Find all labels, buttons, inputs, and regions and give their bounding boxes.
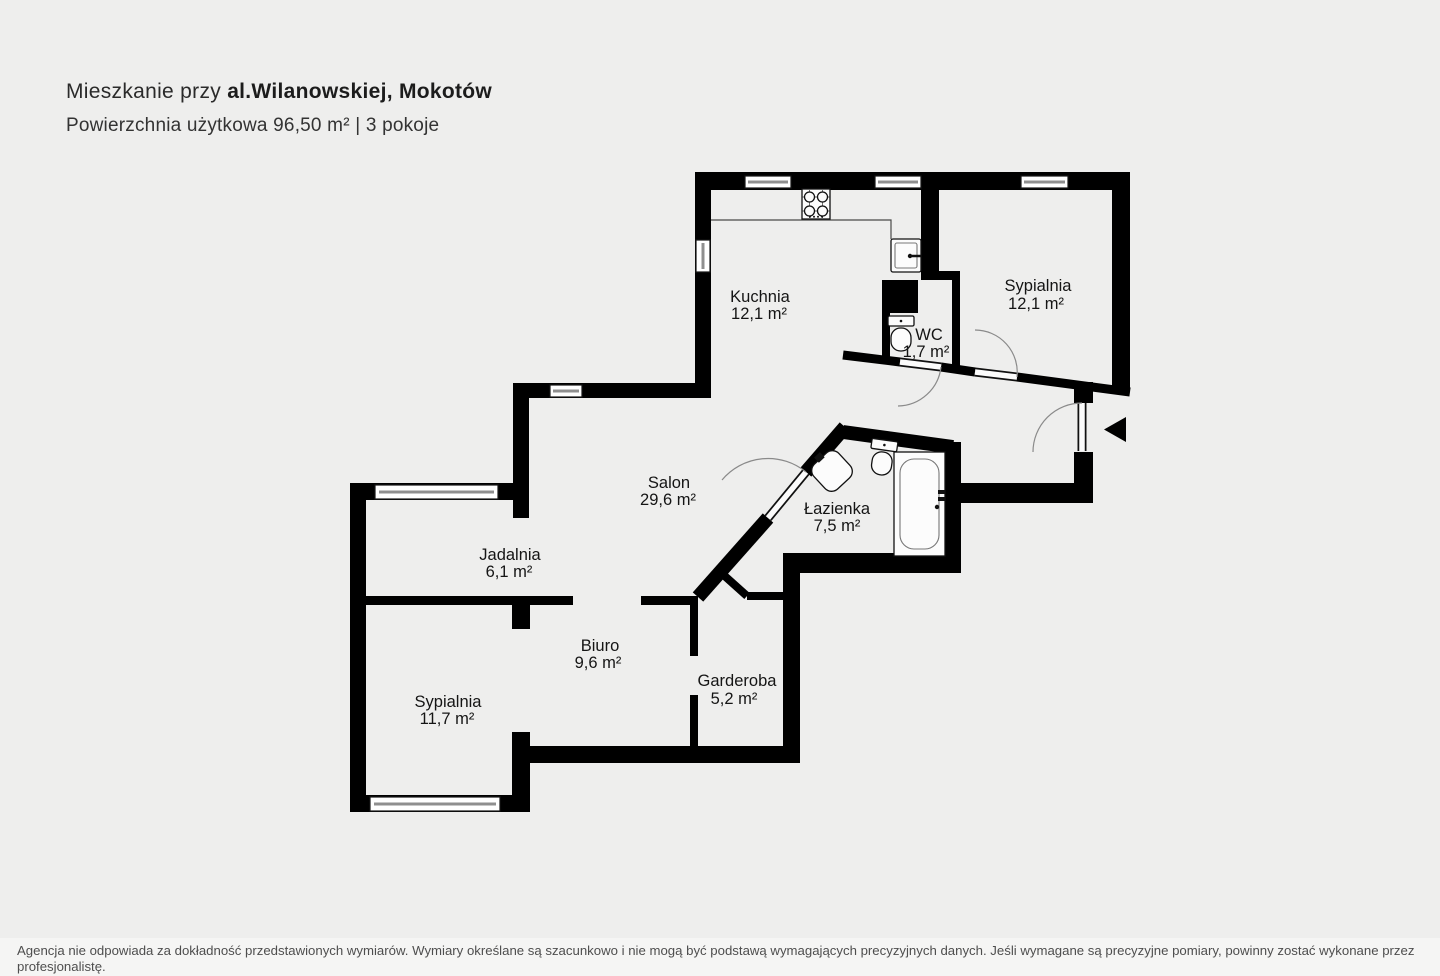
room-label-jadalnia: Jadalnia 6,1 m² <box>479 546 541 581</box>
svg-text:Sypialnia: Sypialnia <box>1005 277 1073 295</box>
svg-text:12,1 m²: 12,1 m² <box>1008 295 1064 313</box>
svg-text:9,6 m²: 9,6 m² <box>575 654 622 672</box>
svg-text:Biuro: Biuro <box>581 637 620 655</box>
door-swing <box>1033 403 1082 452</box>
kitchen-counter <box>711 220 891 239</box>
window <box>875 176 921 188</box>
door-wc <box>898 362 941 406</box>
window <box>1021 176 1068 188</box>
disclaimer-text: Agencja nie odpowiada za dokładność prze… <box>17 943 1414 974</box>
room-label-wc: WC 1,7 m² <box>903 326 950 361</box>
room-label-lazienka: Łazienka 7,5 m² <box>804 500 871 535</box>
door-sypialnia-gorna <box>975 330 1017 377</box>
svg-text:5,2 m²: 5,2 m² <box>711 690 758 708</box>
entrance-arrow-icon <box>1104 417 1126 442</box>
svg-text:6,1 m²: 6,1 m² <box>486 563 533 581</box>
disclaimer-bar: Agencja nie odpowiada za dokładność prze… <box>0 938 1440 976</box>
door-lazienka <box>722 458 806 518</box>
door-swing <box>898 367 941 406</box>
door-entry <box>1033 403 1082 452</box>
floor-plan-drawing: Kuchnia 12,1 m² Sypialnia 12,1 m² WC 1,7… <box>0 0 1440 976</box>
svg-text:Łazienka: Łazienka <box>804 500 871 518</box>
room-label-sypialnia-gorna: Sypialnia 12,1 m² <box>1005 277 1073 313</box>
window <box>696 240 710 272</box>
room-label-garderoba: Garderoba 5,2 m² <box>698 672 778 708</box>
door-swing <box>722 458 806 480</box>
room-label-kuchnia: Kuchnia 12,1 m² <box>730 288 790 323</box>
svg-text:Salon: Salon <box>648 474 690 492</box>
svg-text:Sypialnia: Sypialnia <box>415 693 483 711</box>
room-label-salon: Salon 29,6 m² <box>640 474 696 509</box>
svg-text:Jadalnia: Jadalnia <box>479 546 541 564</box>
room-label-sypialnia-dolna: Sypialnia 11,7 m² <box>415 693 483 728</box>
corner-sink-icon <box>805 443 856 495</box>
window <box>550 385 582 397</box>
window <box>370 797 500 811</box>
window <box>745 176 791 188</box>
svg-text:11,7 m²: 11,7 m² <box>420 710 475 728</box>
svg-text:7,5 m²: 7,5 m² <box>814 517 861 535</box>
svg-text:12,1 m²: 12,1 m² <box>731 305 787 323</box>
svg-text:WC: WC <box>915 326 943 344</box>
bathtub-icon <box>894 452 945 556</box>
svg-text:Kuchnia: Kuchnia <box>730 288 790 306</box>
svg-text:1,7 m²: 1,7 m² <box>903 343 950 361</box>
window <box>375 485 498 499</box>
room-label-biuro: Biuro 9,6 m² <box>575 637 622 672</box>
kitchen-sink-icon <box>891 239 921 272</box>
svg-text:29,6 m²: 29,6 m² <box>640 491 696 509</box>
svg-text:Garderoba: Garderoba <box>698 672 778 690</box>
floor-plan-page: Mieszkanie przy al.Wilanowskiej, Mokotów… <box>0 0 1440 976</box>
stove-icon <box>802 189 830 219</box>
